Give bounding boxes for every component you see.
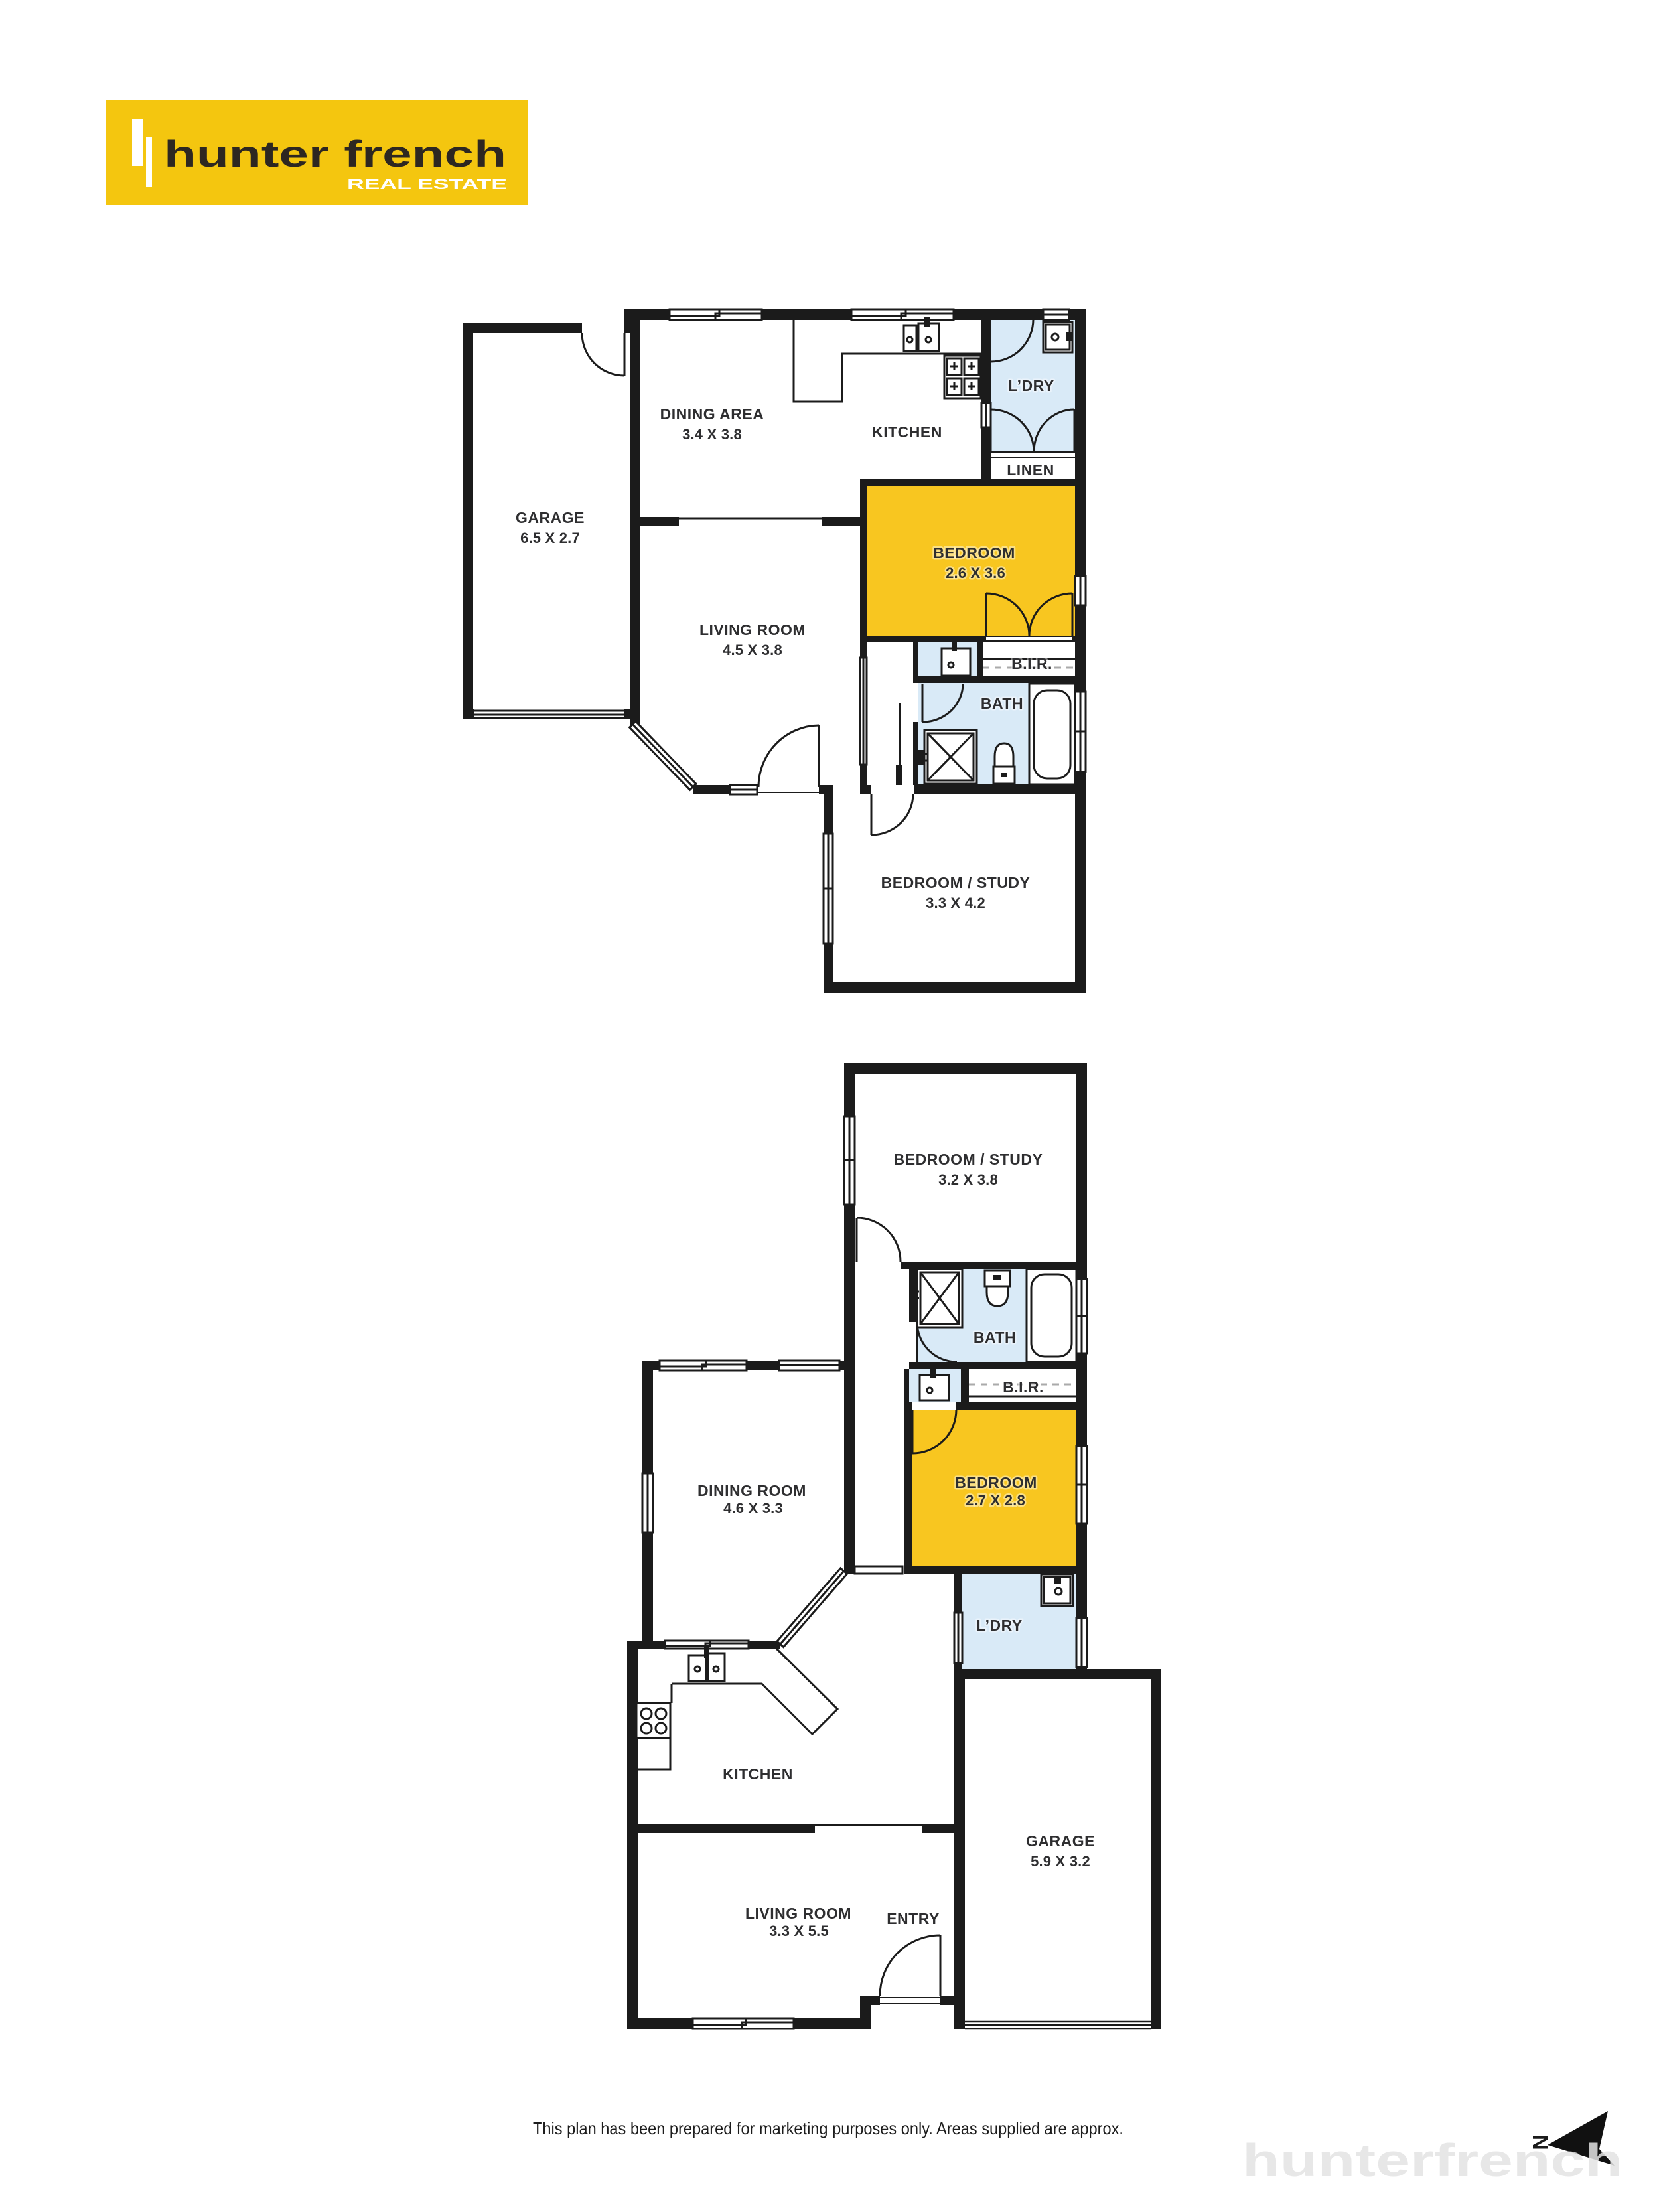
svg-text:BEDROOM / STUDY: BEDROOM / STUDY (894, 1151, 1043, 1168)
svg-text:BATH: BATH (974, 1329, 1016, 1346)
svg-text:4.6 X 3.3: 4.6 X 3.3 (723, 1500, 783, 1516)
svg-text:BATH: BATH (981, 695, 1023, 712)
svg-text:3.2 X 3.8: 3.2 X 3.8 (938, 1171, 998, 1188)
svg-text:LINEN: LINEN (1007, 461, 1054, 479)
svg-text:L’DRY: L’DRY (976, 1617, 1022, 1634)
svg-text:2.7 X 2.8: 2.7 X 2.8 (966, 1492, 1025, 1509)
svg-text:hunterfrench: hunterfrench (1242, 2134, 1623, 2186)
svg-text:BEDROOM: BEDROOM (955, 1474, 1037, 1491)
svg-text:LIVING ROOM: LIVING ROOM (745, 1905, 851, 1922)
svg-text:B.I.R.: B.I.R. (1003, 1378, 1044, 1396)
svg-text:BEDROOM / STUDY: BEDROOM / STUDY (881, 874, 1031, 891)
svg-text:GARAGE: GARAGE (516, 509, 585, 526)
svg-text:3.4 X 3.8: 3.4 X 3.8 (682, 426, 742, 443)
svg-text:L’DRY: L’DRY (1008, 377, 1054, 394)
svg-text:KITCHEN: KITCHEN (872, 423, 942, 441)
svg-text:DINING ROOM: DINING ROOM (697, 1482, 806, 1499)
svg-text:GARAGE: GARAGE (1026, 1832, 1095, 1850)
svg-text:LIVING ROOM: LIVING ROOM (699, 621, 806, 638)
svg-text:DINING AREA: DINING AREA (660, 406, 764, 423)
svg-text:hunter french: hunter french (164, 133, 506, 175)
svg-text:REAL ESTATE: REAL ESTATE (347, 176, 507, 192)
svg-text:6.5 X 2.7: 6.5 X 2.7 (520, 530, 580, 546)
svg-text:BEDROOM: BEDROOM (933, 544, 1015, 561)
svg-text:5.9 X 3.2: 5.9 X 3.2 (1031, 1853, 1090, 1870)
svg-text:B.I.R.: B.I.R. (1011, 655, 1052, 672)
svg-text:This plan has been prepared fo: This plan has been prepared for marketin… (533, 2118, 1123, 2138)
svg-text:4.5 X 3.8: 4.5 X 3.8 (723, 642, 782, 658)
svg-text:3.3 X 4.2: 3.3 X 4.2 (926, 895, 985, 911)
svg-text:ENTRY: ENTRY (887, 1910, 940, 1927)
svg-text:2.6 X 3.6: 2.6 X 3.6 (946, 565, 1005, 581)
svg-text:3.3 X 5.5: 3.3 X 5.5 (769, 1923, 829, 1939)
svg-text:KITCHEN: KITCHEN (723, 1765, 793, 1783)
